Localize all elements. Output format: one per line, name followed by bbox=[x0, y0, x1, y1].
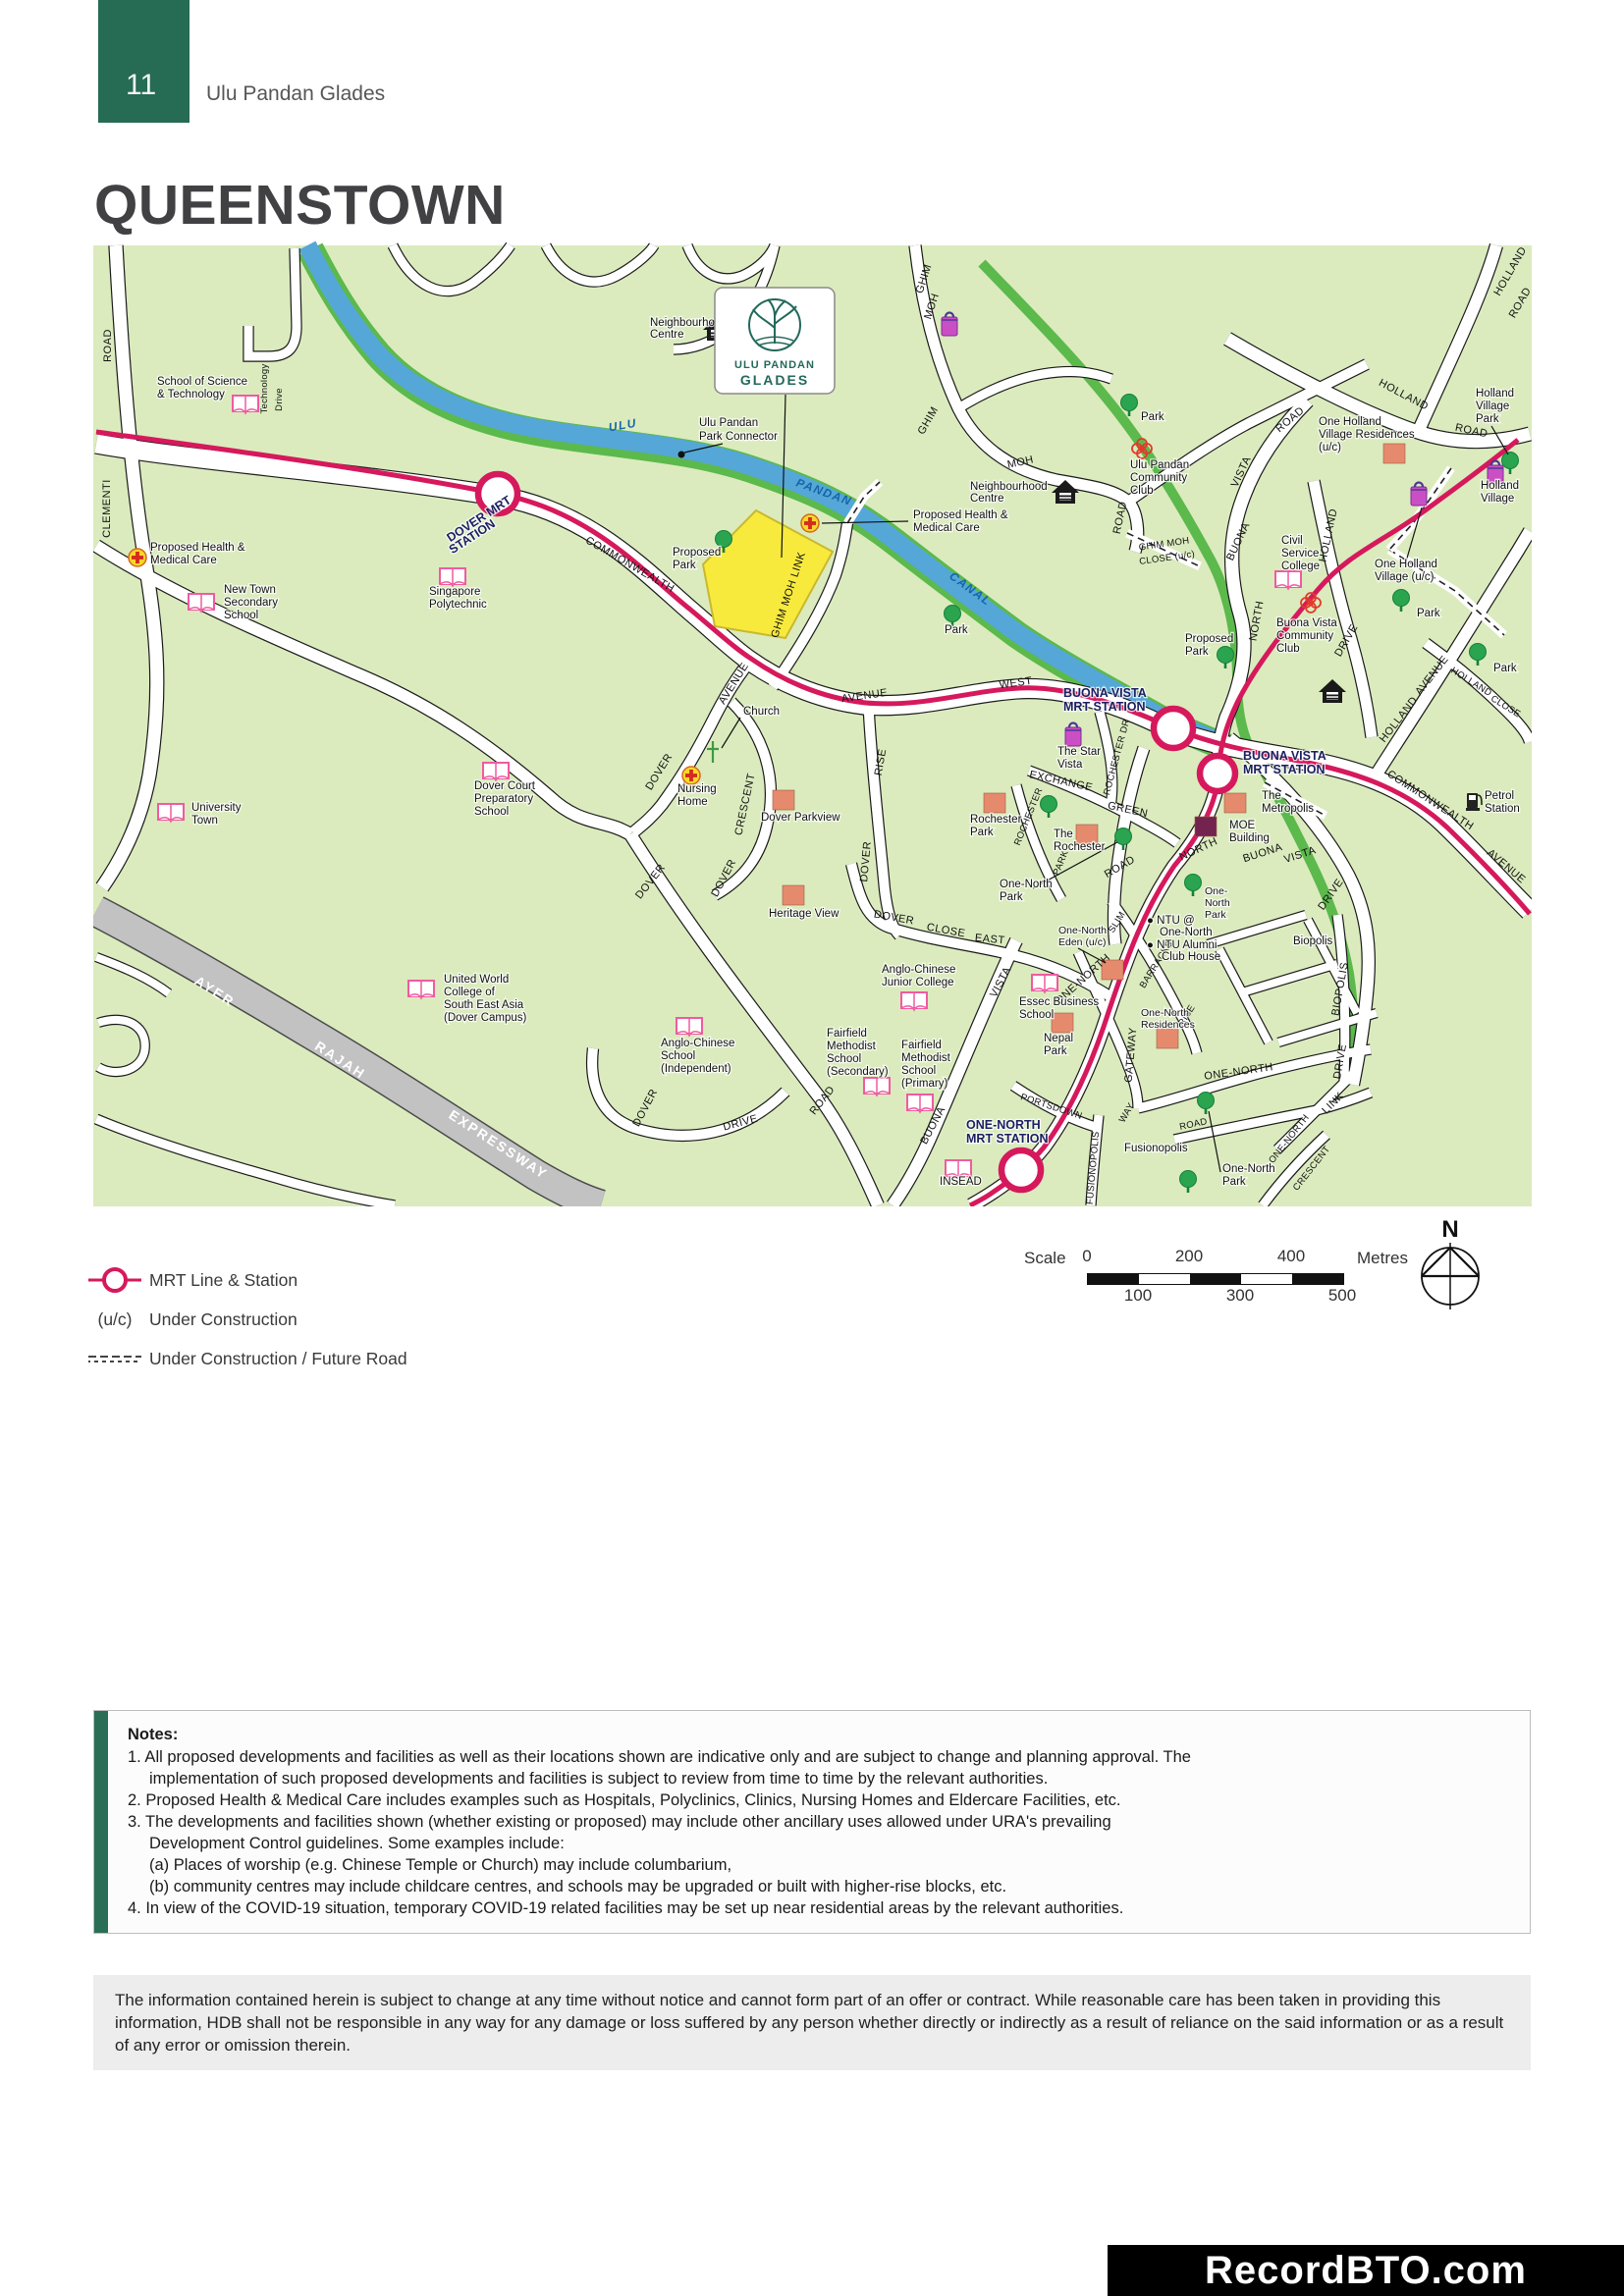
map-label: The bbox=[1262, 790, 1281, 802]
legend-future-road-label: Under Construction / Future Road bbox=[149, 1349, 407, 1369]
disclaimer: The information contained herein is subj… bbox=[93, 1975, 1531, 2070]
compass-north-label: N bbox=[1441, 1216, 1458, 1243]
moe-building bbox=[1195, 817, 1217, 836]
map-label: (Independent) bbox=[661, 1063, 731, 1075]
scale-tick: 400 bbox=[1277, 1247, 1305, 1266]
book-icon bbox=[483, 763, 509, 780]
map-label: Nepal bbox=[1044, 1033, 1073, 1044]
map-label: Community bbox=[1276, 630, 1333, 642]
legend-mrt-label: MRT Line & Station bbox=[149, 1270, 298, 1291]
map-label: Church bbox=[743, 706, 780, 718]
map-label: MRT STATION bbox=[966, 1132, 1049, 1146]
map-label: North bbox=[1205, 897, 1230, 909]
map-label: INSEAD bbox=[940, 1176, 982, 1188]
map-canvas: ROADCLEMENTITechnologyDriveCOMMONWEALTHA… bbox=[93, 240, 1532, 1206]
map-label: MRT STATION bbox=[1243, 763, 1326, 776]
map-label: Park bbox=[1493, 663, 1517, 674]
map-label: Proposed Health & bbox=[913, 509, 1008, 521]
map-label: ROAD bbox=[102, 329, 114, 362]
mrt-station-icon bbox=[1001, 1150, 1041, 1190]
building bbox=[984, 793, 1005, 813]
map-label: Medical Care bbox=[150, 555, 217, 566]
map-label: Park bbox=[1000, 891, 1023, 903]
map-label: The bbox=[1054, 828, 1073, 840]
map-label: Dover Parkview bbox=[761, 812, 840, 824]
map-label: Fairfield bbox=[901, 1040, 942, 1051]
future-road-icon bbox=[81, 1352, 149, 1367]
book-icon bbox=[1275, 571, 1301, 589]
page: 11 Ulu Pandan Glades QUEENSTOWN bbox=[0, 0, 1624, 2296]
map-label: Proposed Health & bbox=[150, 542, 245, 554]
map-label: Vista bbox=[1057, 759, 1083, 771]
map-label: One-North bbox=[1058, 925, 1107, 936]
map-label: Park bbox=[1205, 909, 1226, 921]
map-label: The Star bbox=[1057, 746, 1101, 758]
legend-uc: (u/c) Under Construction bbox=[81, 1309, 298, 1330]
uc-symbol: (u/c) bbox=[81, 1309, 149, 1330]
map-label: School bbox=[1019, 1009, 1054, 1021]
map-label: One Holland bbox=[1319, 416, 1381, 428]
map-label: One-North bbox=[1141, 1007, 1189, 1019]
map-label: School bbox=[224, 610, 258, 621]
map-label: Park bbox=[1417, 608, 1440, 619]
map-label: BUONA VISTA bbox=[1243, 749, 1326, 763]
map-label: Ulu Pandan bbox=[1130, 459, 1189, 471]
map-label: School of Science bbox=[157, 376, 247, 388]
map-label: School bbox=[474, 806, 509, 818]
notes-heading: Notes: bbox=[128, 1723, 1512, 1746]
scale-tick: 500 bbox=[1328, 1286, 1356, 1306]
map-label: Rochester bbox=[1054, 841, 1106, 853]
notes-lines: 1. All proposed developments and facilit… bbox=[128, 1746, 1512, 1919]
med-icon bbox=[682, 767, 700, 784]
map-label: One-North bbox=[1000, 879, 1053, 890]
map-label: BUONA VISTA bbox=[1063, 686, 1147, 700]
note-line: 3. The developments and facilities shown… bbox=[128, 1811, 1512, 1833]
map-label: Park bbox=[970, 827, 994, 838]
scale-label: Scale bbox=[1024, 1249, 1066, 1268]
map-label: Ulu Pandan bbox=[699, 417, 758, 429]
map-label: Park bbox=[1044, 1045, 1067, 1057]
building bbox=[1224, 793, 1246, 813]
map-label: Nursing bbox=[677, 783, 717, 795]
page-number-box: 11 bbox=[98, 0, 189, 123]
med-icon bbox=[801, 514, 819, 532]
map-label: Dover Court bbox=[474, 780, 536, 792]
building bbox=[1052, 1013, 1073, 1033]
scale-bar: Scale Metres 0 200 400 100 300 500 bbox=[1021, 1239, 1434, 1317]
map-label: Fusionopolis bbox=[1124, 1143, 1188, 1154]
map-label: Singapore bbox=[429, 586, 480, 598]
scale-tick: 100 bbox=[1124, 1286, 1152, 1306]
book-icon bbox=[233, 396, 258, 413]
map-label: Park bbox=[945, 624, 968, 636]
map-label: South East Asia bbox=[444, 999, 524, 1011]
map-label: & Technology bbox=[157, 389, 225, 400]
legend-mrt: MRT Line & Station bbox=[81, 1264, 298, 1296]
map-label: Holland bbox=[1476, 388, 1514, 400]
map-label: Civil bbox=[1281, 535, 1303, 547]
scale-tick: 300 bbox=[1226, 1286, 1254, 1306]
map-label: University bbox=[191, 802, 242, 814]
med-icon bbox=[129, 549, 146, 566]
map-label: Centre bbox=[650, 329, 684, 341]
map-label: Park bbox=[673, 560, 696, 571]
map-label: Polytechnic bbox=[429, 599, 487, 611]
map-label: Service bbox=[1281, 548, 1319, 560]
map-label: CLEMENTI bbox=[101, 479, 113, 538]
book-icon bbox=[901, 992, 927, 1010]
map-label: Technology bbox=[259, 363, 270, 413]
project-logo-box: ULU PANDAN GLADES bbox=[715, 288, 835, 394]
map-label: (Primary) bbox=[901, 1078, 947, 1090]
scale-bar-segments bbox=[1087, 1273, 1344, 1285]
map-label: Village Residences bbox=[1319, 429, 1415, 441]
map-label: Proposed bbox=[673, 547, 721, 559]
map-label: Centre bbox=[970, 493, 1004, 505]
map-label: One- bbox=[1205, 885, 1228, 897]
scale-tick: 0 bbox=[1082, 1247, 1091, 1266]
map-label: Preparatory bbox=[474, 793, 533, 805]
building bbox=[1383, 444, 1405, 463]
map-label: Metropolis bbox=[1262, 803, 1314, 815]
note-line: 4. In view of the COVID-19 situation, te… bbox=[128, 1897, 1512, 1919]
legend-future-road: Under Construction / Future Road bbox=[81, 1349, 407, 1369]
map-label: One-North bbox=[1222, 1163, 1275, 1175]
map-label: School bbox=[661, 1050, 695, 1062]
scale-unit: Metres bbox=[1357, 1249, 1408, 1268]
map-label: MRT STATION bbox=[1063, 700, 1146, 714]
scale-tick: 200 bbox=[1175, 1247, 1203, 1266]
book-icon bbox=[1032, 975, 1057, 992]
map-label: Park bbox=[1185, 646, 1209, 658]
mrt-line-station-icon bbox=[81, 1264, 149, 1296]
book-icon bbox=[189, 594, 214, 612]
book-icon bbox=[440, 568, 465, 586]
book-icon bbox=[864, 1078, 890, 1095]
book-icon bbox=[158, 804, 184, 822]
map-label: Residences bbox=[1141, 1019, 1195, 1031]
map-label: Anglo-Chinese bbox=[882, 964, 955, 976]
map-label: Petrol bbox=[1485, 790, 1514, 802]
map-label: Anglo-Chinese bbox=[661, 1038, 734, 1049]
map-label: School bbox=[901, 1065, 936, 1077]
map-label: (u/c) bbox=[1319, 442, 1341, 454]
map-label: Club House bbox=[1162, 951, 1220, 963]
map-label: Junior College bbox=[882, 977, 954, 988]
book-icon bbox=[677, 1018, 702, 1036]
map-label: Eden (u/c) bbox=[1058, 936, 1106, 948]
map-label: Park Connector bbox=[699, 431, 778, 443]
logo-line2: GLADES bbox=[740, 372, 809, 388]
building bbox=[1157, 1029, 1178, 1048]
map-label: One-North bbox=[1160, 927, 1213, 938]
map-label: Village bbox=[1476, 400, 1509, 412]
map-label: Club bbox=[1276, 643, 1300, 655]
project-name: Ulu Pandan Glades bbox=[206, 82, 385, 106]
map-label: Medical Care bbox=[913, 522, 980, 534]
map-label: Club bbox=[1130, 485, 1154, 497]
map-label: Essec Business bbox=[1019, 996, 1099, 1008]
mrt-station-icon bbox=[1200, 756, 1235, 791]
map-label: Park bbox=[1476, 413, 1499, 425]
map-label: (Secondary) bbox=[827, 1066, 889, 1078]
book-icon bbox=[907, 1095, 933, 1112]
notes-accent-bar bbox=[94, 1711, 108, 1933]
book-icon bbox=[408, 981, 434, 998]
page-number: 11 bbox=[126, 69, 156, 102]
map-label: Building bbox=[1229, 832, 1270, 844]
legend-uc-label: Under Construction bbox=[149, 1309, 298, 1330]
note-line: 1. All proposed developments and facilit… bbox=[128, 1746, 1512, 1768]
map-label: Drive bbox=[274, 388, 285, 411]
map-label: Fairfield bbox=[827, 1028, 867, 1040]
map-label: Holland bbox=[1481, 480, 1519, 492]
page-title: QUEENSTOWN bbox=[94, 173, 506, 238]
map-label: Park bbox=[1222, 1176, 1246, 1188]
watermark: RecordBTO.com bbox=[1108, 2245, 1624, 2296]
note-line: 2. Proposed Health & Medical Care includ… bbox=[128, 1789, 1512, 1811]
map-label: Neighbourhood bbox=[970, 481, 1048, 493]
map-label: MOE bbox=[1229, 820, 1256, 831]
map-label: Village (u/c) bbox=[1375, 571, 1435, 583]
map-label: One Holland bbox=[1375, 559, 1437, 570]
dot-icon bbox=[678, 452, 685, 458]
map-label: United World bbox=[444, 974, 509, 986]
map-label: College bbox=[1281, 561, 1320, 572]
map-label: College of bbox=[444, 987, 496, 998]
map-label: Park bbox=[1141, 411, 1164, 423]
map-label: Methodist bbox=[827, 1041, 877, 1052]
map-label: New Town bbox=[224, 584, 276, 596]
map-label: ONE-NORTH bbox=[966, 1118, 1041, 1132]
building bbox=[773, 790, 794, 810]
north-compass-icon: N bbox=[1406, 1215, 1494, 1317]
map-label: Secondary bbox=[224, 597, 278, 609]
map-label: Buona Vista bbox=[1276, 617, 1337, 629]
map-label: Rochester bbox=[970, 814, 1022, 826]
note-line: Development Control guidelines. Some exa… bbox=[128, 1833, 1512, 1854]
mrt-station-icon bbox=[1154, 709, 1193, 748]
map-label: Station bbox=[1485, 803, 1520, 815]
map: ROADCLEMENTITechnologyDriveCOMMONWEALTHA… bbox=[93, 240, 1532, 1206]
note-line: (a) Places of worship (e.g. Chinese Temp… bbox=[128, 1854, 1512, 1876]
note-line: implementation of such proposed developm… bbox=[128, 1768, 1512, 1789]
building bbox=[783, 885, 804, 905]
map-label: ● NTU @ bbox=[1147, 915, 1195, 927]
map-label: Home bbox=[677, 796, 708, 808]
map-label: Village bbox=[1481, 493, 1514, 505]
map-label: School bbox=[827, 1053, 861, 1065]
logo-line1: ULU PANDAN bbox=[734, 359, 815, 371]
map-label: Proposed bbox=[1185, 633, 1233, 645]
map-label: Heritage View bbox=[769, 908, 839, 920]
map-label: Methodist bbox=[901, 1052, 951, 1064]
notes-box: Notes: 1. All proposed developments and … bbox=[93, 1710, 1531, 1934]
map-label: Town bbox=[191, 815, 218, 827]
note-line: (b) community centres may include childc… bbox=[128, 1876, 1512, 1897]
map-label: (Dover Campus) bbox=[444, 1012, 527, 1024]
map-label: ● NTU Alumni bbox=[1147, 939, 1218, 951]
map-label: Biopolis bbox=[1293, 935, 1333, 947]
map-label: Community bbox=[1130, 472, 1187, 484]
